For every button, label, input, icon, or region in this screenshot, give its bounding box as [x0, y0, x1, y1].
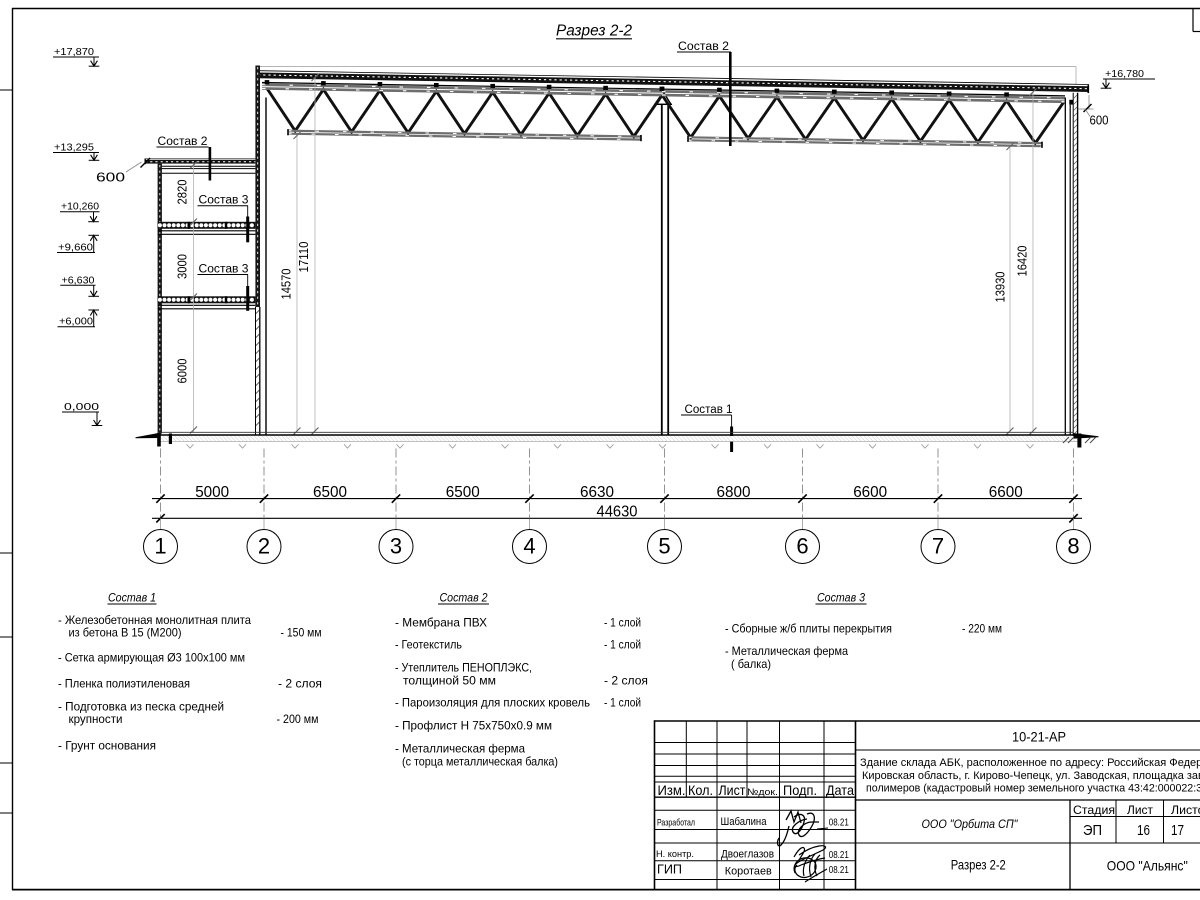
svg-text:- Утеплитель ПЕНОПЛЭКС,: - Утеплитель ПЕНОПЛЭКС, [395, 661, 532, 675]
svg-text:- Сборные ж/б плиты перекрытия: - Сборные ж/б плиты перекрытия [725, 622, 892, 636]
svg-text:Состав 1: Состав 1 [108, 591, 156, 605]
svg-text:4: 4 [523, 534, 535, 559]
svg-text:ООО "Орбита СП": ООО "Орбита СП" [922, 817, 1019, 831]
svg-text:1: 1 [154, 534, 166, 559]
svg-text:Состав 1: Состав 1 [685, 404, 733, 416]
svg-text:6600: 6600 [853, 484, 887, 501]
svg-text:Шабалина: Шабалина [721, 816, 768, 828]
svg-text:8: 8 [1067, 534, 1079, 559]
svg-text:Разработал: Разработал [657, 817, 695, 828]
svg-text:6600: 6600 [989, 484, 1023, 501]
svg-text:- 150 мм: - 150 мм [281, 626, 322, 640]
svg-text:Коротаев: Коротаев [725, 865, 772, 877]
svg-text:из бетона В 15 (М200): из бетона В 15 (М200) [69, 626, 182, 640]
svg-text:6: 6 [796, 534, 808, 559]
svg-text:10-21-АР: 10-21-АР [1012, 729, 1066, 745]
svg-text:- Мембрана ПВХ: - Мембрана ПВХ [395, 616, 487, 630]
svg-text:Разрез 2-2: Разрез 2-2 [556, 23, 632, 40]
svg-text:- Металлическая ферма: - Металлическая ферма [395, 742, 525, 756]
svg-text:Состав 2: Состав 2 [678, 41, 729, 53]
svg-text:13930: 13930 [993, 272, 1008, 303]
svg-text:Дата: Дата [826, 782, 854, 798]
svg-text:Состав 3: Состав 3 [199, 195, 249, 207]
svg-text:Лист: Лист [1127, 803, 1153, 817]
svg-text:+10,260: +10,260 [61, 201, 99, 213]
svg-text:- Геотекстиль: - Геотекстиль [395, 638, 462, 652]
svg-text:16420: 16420 [1015, 246, 1030, 277]
svg-text:ГИП: ГИП [657, 862, 682, 876]
svg-text:6500: 6500 [313, 484, 347, 501]
svg-text:5: 5 [658, 534, 670, 559]
svg-text:+9,660: +9,660 [58, 242, 93, 254]
svg-text:Подп.: Подп. [783, 782, 817, 798]
svg-text:- Грунт основания: - Грунт основания [58, 739, 156, 753]
svg-text:- 1 слой: - 1 слой [604, 696, 641, 710]
svg-text:Состав 2: Состав 2 [440, 591, 488, 605]
svg-text:- Профлист Н 75х750х0.9 мм: - Профлист Н 75х750х0.9 мм [395, 719, 552, 733]
svg-text:16: 16 [1137, 823, 1150, 839]
svg-text:- 2 слоя: - 2 слоя [278, 677, 322, 691]
svg-text:Двоеглазов: Двоеглазов [721, 848, 774, 860]
svg-text:- 1 слой: - 1 слой [604, 638, 641, 652]
svg-text:600: 600 [1090, 114, 1109, 128]
svg-text:полимеров (кадастровый номер з: полимеров (кадастровый номер земельного … [866, 782, 1200, 794]
svg-text:+6,630: +6,630 [62, 274, 95, 286]
svg-text:6800: 6800 [717, 484, 751, 501]
svg-text:14570: 14570 [279, 269, 294, 300]
svg-text:Разрез 2-2: Разрез 2-2 [951, 857, 1006, 873]
svg-text:№док.: №док. [747, 787, 778, 798]
svg-text:Лист: Лист [719, 782, 747, 798]
svg-text:+13,295: +13,295 [54, 142, 94, 154]
svg-text:2820: 2820 [175, 180, 190, 205]
svg-text:(с торца металлическая балка): (с торца металлическая балка) [402, 755, 558, 769]
svg-text:0,000: 0,000 [64, 401, 99, 413]
svg-text:- 200 мм: - 200 мм [277, 712, 319, 726]
svg-text:Стадия: Стадия [1073, 803, 1115, 817]
svg-text:Кол.: Кол. [688, 782, 713, 798]
svg-text:3: 3 [390, 534, 402, 559]
svg-text:- 1 слой: - 1 слой [604, 616, 641, 630]
svg-text:ООО "Альянс": ООО "Альянс" [1107, 859, 1188, 874]
svg-text:Состав 3: Состав 3 [817, 591, 865, 605]
svg-text:Состав 3: Состав 3 [199, 263, 249, 275]
svg-text:+6,000: +6,000 [59, 316, 93, 328]
svg-text:3000: 3000 [175, 254, 190, 279]
svg-text:- Пароизоляция для плоских кро: - Пароизоляция для плоских кровель [395, 696, 590, 710]
svg-text:- Пленка полиэтиленовая: - Пленка полиэтиленовая [58, 677, 190, 691]
svg-text:ЭП: ЭП [1083, 823, 1102, 839]
svg-text:- Металлическая ферма: - Металлическая ферма [725, 644, 848, 658]
svg-text:2: 2 [258, 534, 270, 559]
svg-text:Н. контр.: Н. контр. [656, 849, 694, 860]
svg-text:17110: 17110 [296, 242, 311, 273]
svg-text:- Сетка армирующая Ø3 100х100: - Сетка армирующая Ø3 100х100 мм [58, 651, 245, 665]
svg-text:( балка): ( балка) [731, 657, 771, 671]
svg-text:толщиной 50 мм: толщиной 50 мм [403, 674, 496, 688]
svg-text:44630: 44630 [597, 503, 638, 520]
svg-text:Состав 2: Состав 2 [158, 136, 208, 148]
svg-text:08.21: 08.21 [829, 865, 849, 876]
svg-text:600: 600 [96, 170, 125, 184]
svg-text:Здание склада АБК, расположенн: Здание склада АБК, расположенное по адре… [860, 757, 1200, 769]
svg-text:17: 17 [1171, 823, 1184, 839]
svg-text:Кировская область, г. Кирово-Ч: Кировская область, г. Кирово-Чепецк, ул.… [862, 770, 1200, 782]
svg-text:7: 7 [932, 534, 944, 559]
svg-text:- 2 слоя: - 2 слоя [604, 674, 648, 688]
svg-text:6630: 6630 [580, 484, 614, 501]
svg-text:Изм.: Изм. [658, 782, 686, 798]
svg-text:5000: 5000 [195, 484, 229, 501]
svg-text:6500: 6500 [446, 484, 480, 501]
svg-text:6000: 6000 [175, 359, 190, 384]
svg-text:крупности: крупности [69, 712, 123, 726]
svg-text:Листов: Листов [1171, 803, 1200, 817]
svg-text:08.21: 08.21 [829, 818, 849, 829]
svg-text:+16,780: +16,780 [1105, 68, 1144, 80]
svg-text:08.21: 08.21 [829, 850, 849, 861]
svg-text:+17,870: +17,870 [54, 46, 94, 58]
svg-text:- 220 мм: - 220 мм [962, 622, 1002, 636]
